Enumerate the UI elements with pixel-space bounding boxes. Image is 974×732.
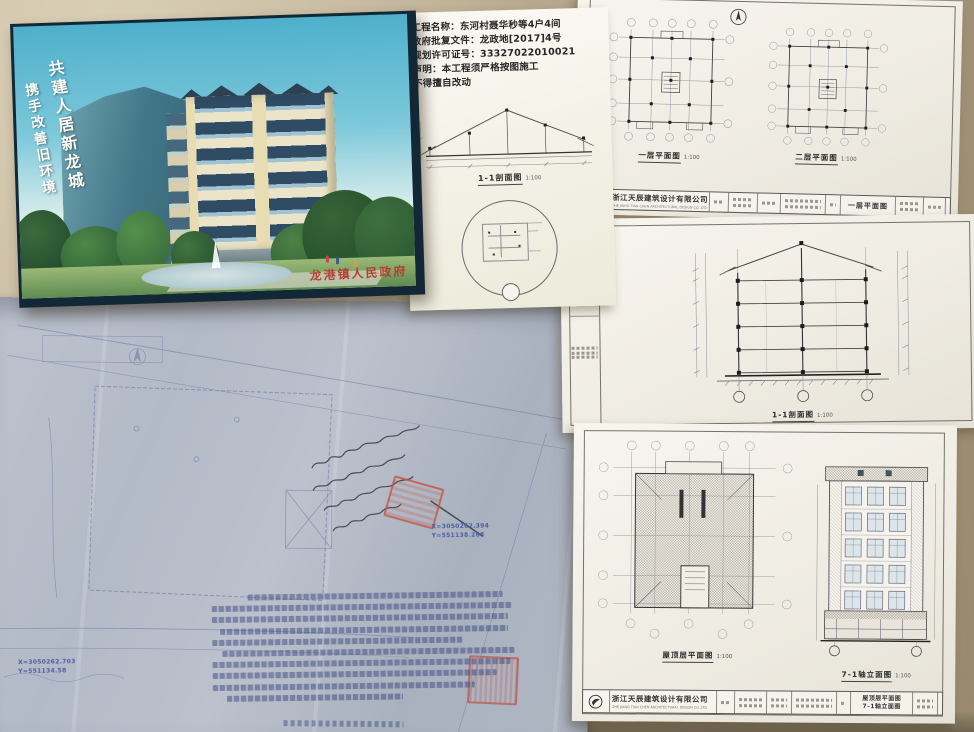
person-figure	[336, 257, 339, 264]
photo-architectural-documents-wall: X=3050262.394 Y=551138.288 X=3050262.703…	[0, 0, 974, 732]
roof-section-sketch	[414, 93, 602, 172]
roof-plan-drawing	[590, 437, 799, 644]
drawing-name-field: 屋顶层平面图 7-1轴立面图	[850, 692, 912, 714]
blueprint-text-line	[222, 647, 514, 657]
title-block-field	[791, 692, 836, 714]
drawing-name-field: 一层平面图	[840, 195, 896, 215]
blueprint-text-line	[220, 625, 508, 635]
roof-plan-elevation-sheet: 屋顶层平面图 1:100	[572, 423, 957, 724]
title-block-field	[716, 691, 734, 713]
blueprint-text-line	[212, 613, 508, 623]
blueprint-text-line	[212, 636, 462, 645]
second-floor-plan-drawing	[766, 23, 889, 152]
title-block-field	[734, 691, 767, 713]
section-label: 1-1剖面图 1:100	[712, 408, 892, 423]
blueprint-notes-text	[212, 591, 518, 707]
elevation-label: 7-1轴立面图 1:100	[818, 669, 934, 683]
rendering-poster: 共建人居新龙城 携手改善旧环境 龙港镇人民政府	[10, 11, 425, 308]
company-logo-icon	[583, 690, 609, 712]
blueprint-text-line	[213, 681, 475, 691]
person-figure	[326, 256, 329, 263]
title-block-field	[766, 691, 791, 713]
detail-bubble-icon	[502, 283, 520, 301]
coordinate-x: X=3050262.703	[18, 657, 76, 667]
landscape-trees	[19, 190, 416, 299]
coordinate-y: Y=551138.288	[432, 531, 490, 541]
company-name: 浙江天辰建筑设计有限公司 ZHE JIANG TIAN CHEN ARCHITE…	[609, 690, 716, 713]
blueprint-text-line	[227, 693, 403, 701]
blueprint-footer-marks	[284, 720, 404, 727]
coordinate-y: Y=551134.58	[18, 666, 76, 676]
site-plan-blueprint: X=3050262.394 Y=551138.288 X=3050262.703…	[0, 297, 592, 732]
permit-notice-text: 工程名称：东河村聂华秒等4户4间 政府批复文件：龙政地[2017]4号 规划许可…	[411, 16, 604, 91]
title-block-field	[912, 692, 937, 714]
title-block-field	[937, 693, 942, 715]
rendering-image: 共建人居新龙城 携手改善旧环境 龙港镇人民政府	[13, 14, 416, 299]
title-block-field	[709, 192, 728, 211]
permit-sheet: 工程名称：东河村聂华秒等4户4间 政府批复文件：龙政地[2017]4号 规划许可…	[402, 7, 616, 311]
blueprint-text-line	[213, 669, 497, 679]
title-block-field	[757, 193, 780, 213]
company-name: 浙江天辰建筑设计有限公司 ZHE JIANG TIAN CHEN ARCHITE…	[609, 190, 710, 211]
detail-plan-sketch	[482, 223, 529, 262]
blueprint-text-line	[213, 658, 511, 668]
title-block-field	[824, 195, 840, 214]
title-block-field	[779, 194, 824, 214]
survey-coordinate-label: X=3050262.394 Y=551138.288	[431, 522, 489, 541]
title-block-field	[895, 197, 923, 217]
title-block-field	[728, 193, 758, 213]
first-floor-plan-drawing	[606, 13, 735, 148]
elevation-drawing	[812, 451, 939, 664]
roof-plan-label: 屋顶层平面图 1:100	[622, 649, 772, 663]
title-block-field	[836, 692, 850, 714]
title-block: 浙江天辰建筑设计有限公司 ZHE JIANG TIAN CHEN ARCHITE…	[582, 689, 943, 716]
blueprint-text-line	[212, 602, 512, 612]
section-sheet: 1-1剖面图 1:100	[560, 214, 974, 433]
floor-plans-sheet: 一层平面图 1:100 二层平面图 1:100 浙江天辰建筑设计有限公司 ZHE…	[573, 0, 963, 223]
detail-circle-diagram	[460, 199, 559, 298]
survey-coordinate-label: X=3050262.703 Y=551134.58	[18, 657, 76, 676]
building-section-drawing	[665, 224, 937, 409]
